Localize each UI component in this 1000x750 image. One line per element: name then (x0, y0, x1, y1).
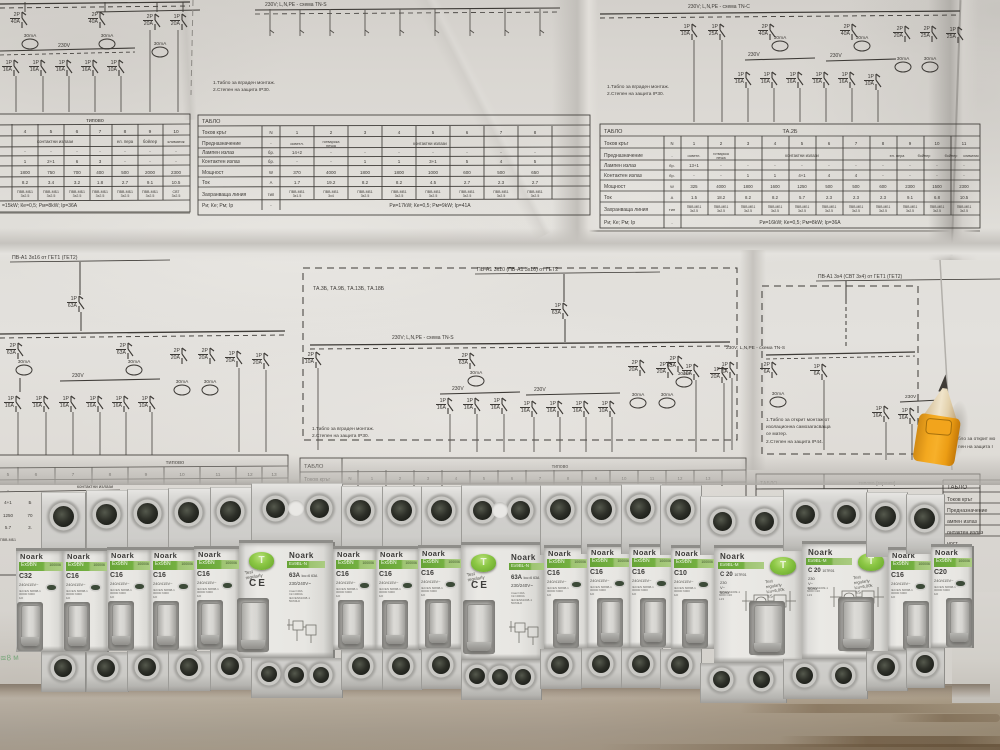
svg-text:2P: 2P (174, 348, 181, 354)
svg-text:63A: 63A (68, 303, 78, 309)
svg-text:1P: 1P (576, 401, 583, 407)
svg-text:изолационна самозагасваща: изолационна самозагасваща (766, 425, 831, 430)
svg-text:30mA: 30mA (661, 392, 674, 398)
svg-text:16A: 16A (437, 405, 447, 411)
svg-text:1P: 1P (550, 401, 557, 407)
svg-text:63A: 63A (7, 350, 17, 356)
svg-text:20A: 20A (629, 367, 639, 373)
svg-text:230V: 230V (534, 387, 546, 393)
svg-text:1P: 1P (63, 396, 70, 402)
svg-text:16A: 16A (873, 413, 883, 419)
svg-text:1P: 1P (8, 396, 15, 402)
svg-text:1P: 1P (142, 396, 149, 402)
svg-text:1P: 1P (494, 398, 501, 404)
svg-text:30mA: 30mA (204, 379, 217, 385)
svg-text:63A: 63A (459, 360, 469, 366)
svg-text:1P: 1P (116, 396, 123, 402)
svg-text:2P: 2P (462, 353, 469, 359)
svg-text:1P: 1P (36, 396, 43, 402)
svg-text:2P: 2P (10, 343, 17, 349)
svg-text:1P: 1P (602, 401, 609, 407)
svg-text:2P: 2P (660, 362, 667, 368)
svg-text:16A: 16A (5, 403, 15, 409)
svg-text:2P: 2P (670, 356, 677, 362)
svg-text:1.Табло за вграден монтаж.: 1.Табло за вграден монтаж. (312, 426, 374, 432)
svg-text:63A: 63A (552, 310, 562, 316)
svg-text:2P: 2P (202, 348, 209, 354)
svg-text:20A: 20A (657, 369, 667, 375)
svg-text:30mA: 30mA (772, 391, 785, 397)
svg-text:2.Степен на защита IP30.: 2.Степен на защита IP30. (312, 433, 369, 439)
svg-text:20A: 20A (171, 355, 181, 361)
svg-text:2P: 2P (764, 362, 771, 368)
svg-text:30mA: 30mA (176, 379, 189, 385)
svg-text:16A: 16A (521, 408, 531, 414)
svg-text:1P: 1P (814, 364, 821, 370)
svg-text:се матер.: се матер. (766, 432, 787, 437)
svg-text:16A: 16A (464, 405, 474, 411)
svg-text:ПВ-А1 3x16 от ГЕТ1 (ГЕТ2): ПВ-А1 3x16 от ГЕТ1 (ГЕТ2) (12, 255, 78, 261)
svg-text:230V; L,N,PE - схема TN-S: 230V; L,N,PE - схема TN-S (392, 335, 454, 341)
svg-text:16A: 16A (547, 408, 557, 414)
svg-text:30mA: 30mA (632, 392, 645, 398)
svg-text:16A: 16A (491, 405, 501, 411)
svg-text:6A: 6A (722, 369, 729, 375)
svg-text:30mA: 30mA (470, 370, 483, 376)
svg-text:ПВ-А1 3x4 (СВТ 3x4) от ГЕТ1 (Г: ПВ-А1 3x4 (СВТ 3x4) от ГЕТ1 (ГЕТ2) (818, 274, 903, 280)
svg-text:1P: 1P (876, 406, 883, 412)
svg-text:230V: 230V (452, 386, 464, 392)
svg-text:20A: 20A (226, 358, 236, 364)
svg-text:30mA: 30mA (128, 359, 141, 365)
svg-text:1P: 1P (555, 303, 562, 309)
svg-text:230V: 230V (72, 373, 84, 379)
svg-text:16A: 16A (113, 403, 123, 409)
svg-text:1P: 1P (71, 296, 78, 302)
svg-text:1P: 1P (467, 398, 474, 404)
svg-text:16A: 16A (573, 408, 583, 414)
svg-text:ПВ-А1 3x10 (ПВ-А1 3x16) от ГЕТ: ПВ-А1 3x10 (ПВ-А1 3x16) от ГЕТ2 (477, 267, 558, 273)
svg-text:1P: 1P (902, 408, 909, 414)
svg-text:ТА.3Б, ТА.9Б, ТА.13Б, ТА.18Б: ТА.3Б, ТА.9Б, ТА.13Б, ТА.18Б (313, 286, 385, 292)
svg-text:20A: 20A (253, 360, 263, 366)
svg-text:16A: 16A (899, 415, 909, 421)
svg-text:1P: 1P (524, 401, 531, 407)
svg-text:230V: 230V (905, 394, 917, 400)
svg-text:10A: 10A (305, 359, 315, 365)
svg-text:230V; L,N,PE - схема TN-S: 230V; L,N,PE - схема TN-S (726, 345, 785, 351)
svg-text:16A: 16A (87, 403, 97, 409)
svg-text:6A: 6A (814, 371, 821, 377)
svg-text:2P: 2P (120, 343, 127, 349)
svg-text:2P: 2P (632, 360, 639, 366)
svg-text:20A: 20A (199, 355, 209, 361)
svg-text:6A: 6A (764, 369, 771, 375)
svg-text:10A: 10A (599, 408, 609, 414)
svg-text:63A: 63A (117, 350, 127, 356)
svg-text:1P: 1P (229, 351, 236, 357)
svg-text:1P: 1P (722, 362, 729, 368)
svg-text:10A: 10A (139, 403, 149, 409)
svg-text:1.Табло за открит монтаж от: 1.Табло за открит монтаж от (766, 417, 830, 423)
svg-text:2P: 2P (308, 352, 315, 358)
svg-text:1P: 1P (256, 353, 263, 359)
svg-text:1P: 1P (686, 364, 693, 370)
svg-text:20A: 20A (711, 374, 721, 380)
svg-text:1P: 1P (90, 396, 97, 402)
svg-text:16A: 16A (683, 371, 693, 377)
svg-text:16A: 16A (60, 403, 70, 409)
svg-text:30mA: 30mA (18, 359, 31, 365)
svg-text:1P: 1P (714, 367, 721, 373)
svg-text:16A: 16A (33, 403, 43, 409)
svg-text:1P: 1P (440, 398, 447, 404)
